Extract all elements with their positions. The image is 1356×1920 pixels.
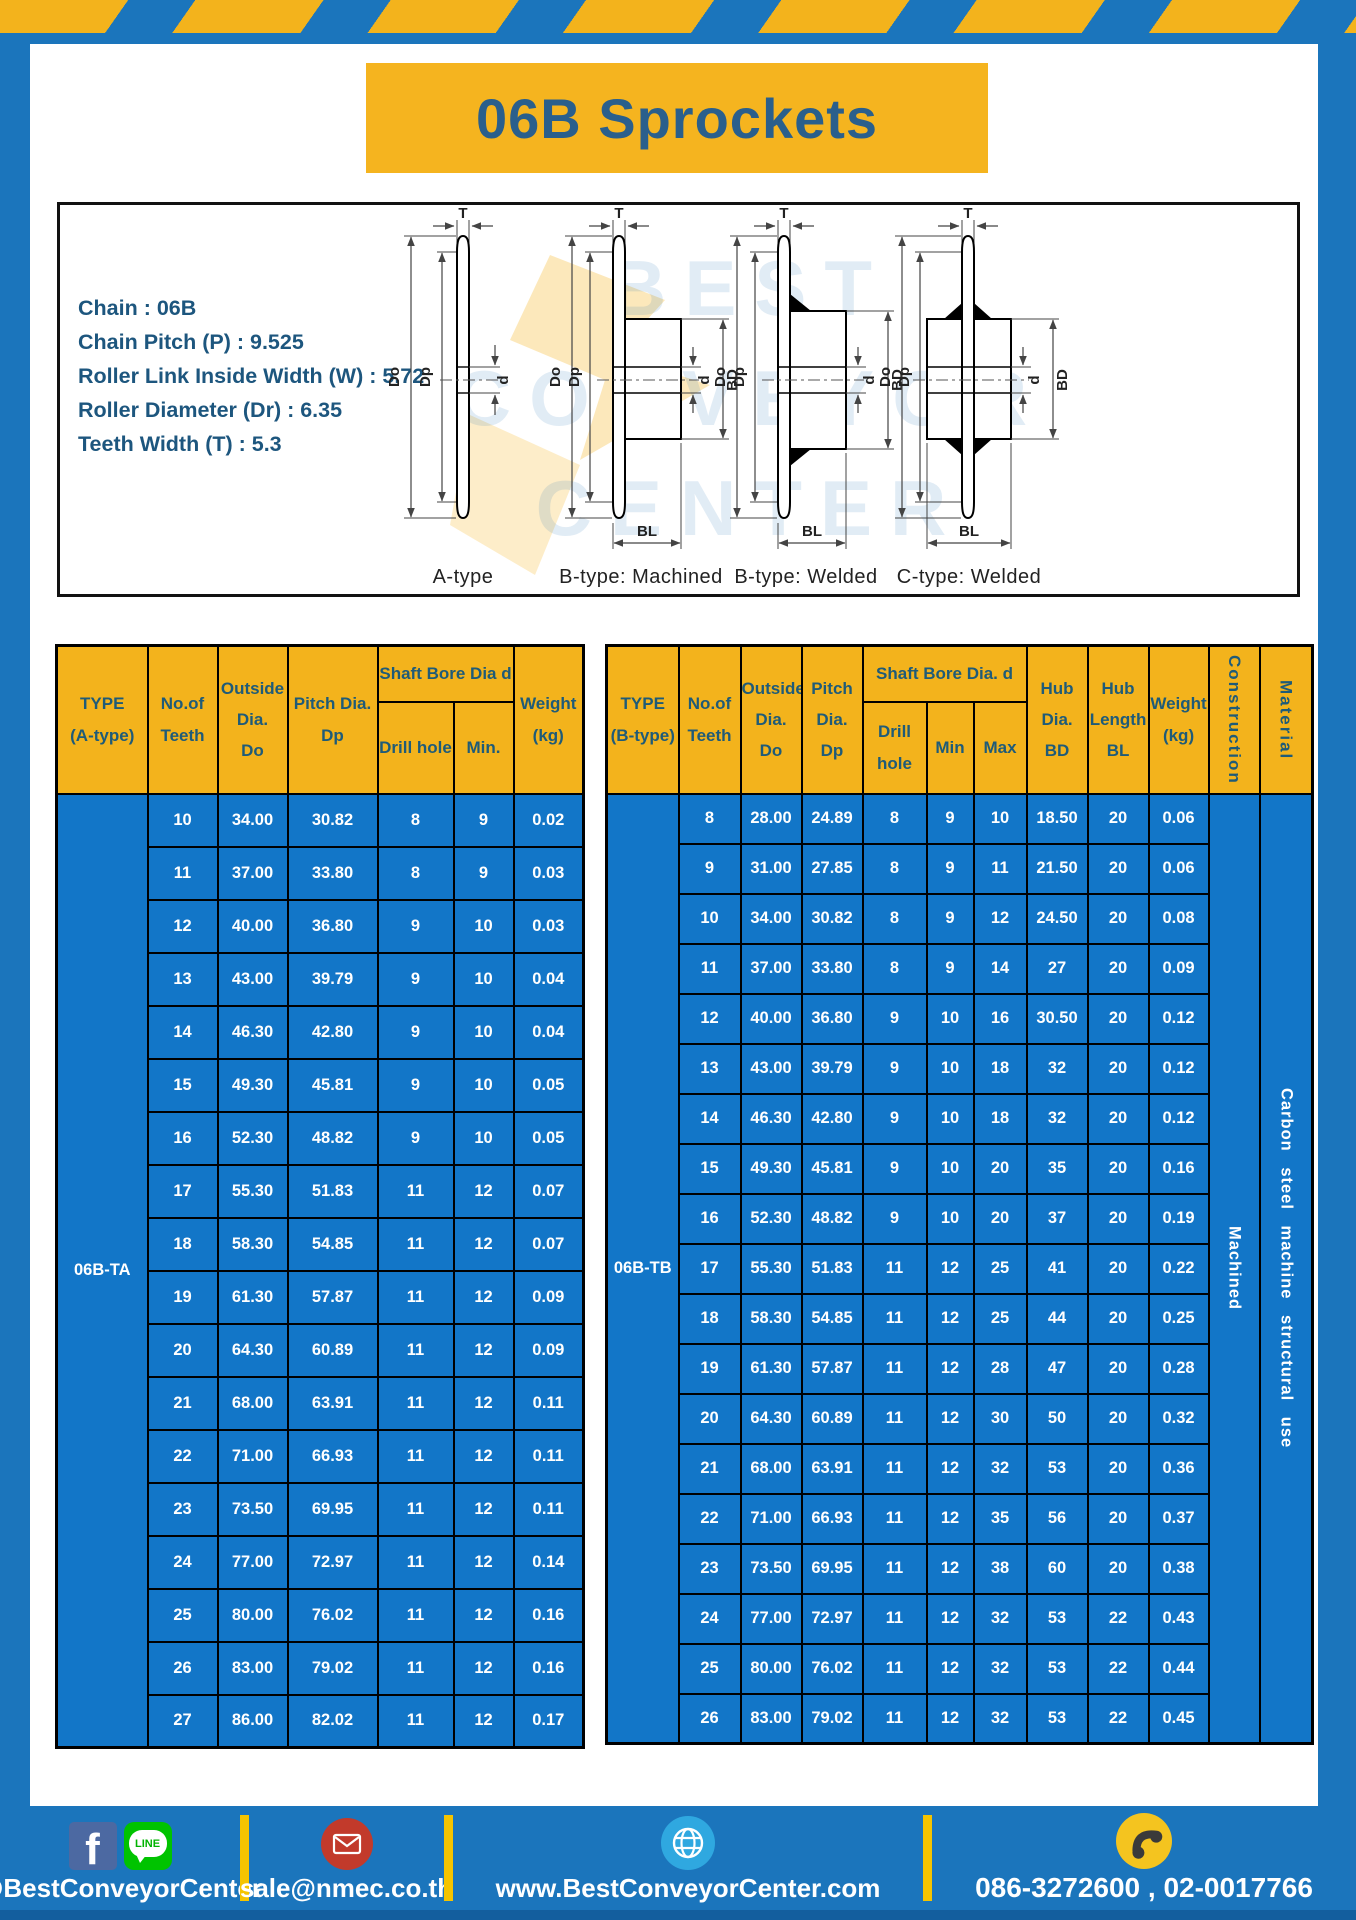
table-cell: 57.87 <box>288 1271 378 1324</box>
table-cell: 12 <box>927 1294 974 1344</box>
table-cell: 72.97 <box>288 1536 378 1589</box>
social-icons: f LINE <box>69 1822 172 1870</box>
table-cell: 73.50 <box>741 1544 802 1594</box>
facebook-letter: f <box>85 1830 100 1870</box>
table-cell: 0.19 <box>1149 1194 1209 1244</box>
col-header-shaft-bore-group: Shaft Bore Dia. d <box>863 646 1027 702</box>
table-cell: 14 <box>148 1006 218 1059</box>
table-cell: 26 <box>148 1642 218 1695</box>
table-cell: 13 <box>679 1044 741 1094</box>
table-cell: 12 <box>679 994 741 1044</box>
table-cell: 21 <box>148 1377 218 1430</box>
table-cell: 80.00 <box>218 1589 288 1642</box>
table-cell: 22 <box>679 1494 741 1544</box>
svg-text:BL: BL <box>802 523 822 540</box>
phone-text: 086-3272600 , 02-0017766 <box>975 1872 1313 1904</box>
table-cell: 0.38 <box>1149 1544 1209 1594</box>
table-row: 1240.0036.809101630.50200.12 <box>607 994 1313 1044</box>
table-cell: 68.00 <box>741 1444 802 1494</box>
table-type-label: 06B-TA <box>57 794 148 1748</box>
table-cell: 9 <box>863 1144 927 1194</box>
table-cell: 35 <box>1027 1144 1088 1194</box>
table-cell: 11 <box>378 1271 454 1324</box>
table-cell: 77.00 <box>218 1536 288 1589</box>
table-cell: 18 <box>974 1044 1027 1094</box>
table-cell: 12 <box>454 1377 514 1430</box>
mail-icon <box>321 1818 373 1870</box>
svg-text:Do: Do <box>877 367 894 387</box>
table-cell: 53 <box>1027 1444 1088 1494</box>
table-row: 2683.0079.0211123253220.45 <box>607 1694 1313 1744</box>
col-header-drill-hole: Drill hole <box>863 702 927 794</box>
table-cell: 69.95 <box>288 1483 378 1536</box>
table-cell: 53 <box>1027 1594 1088 1644</box>
table-cell: 16 <box>974 994 1027 1044</box>
table-cell: 11 <box>148 847 218 900</box>
table-cell: 32 <box>1027 1094 1088 1144</box>
table-cell: 38 <box>974 1544 1027 1594</box>
table-cell: 0.11 <box>514 1377 584 1430</box>
construction-value: Machined <box>1209 794 1260 1744</box>
table-cell: 26 <box>679 1694 741 1744</box>
table-cell: 0.02 <box>514 794 584 847</box>
table-row: 1343.0039.799101832200.12 <box>607 1044 1313 1094</box>
table-row: 1549.3045.819102035200.16 <box>607 1144 1313 1194</box>
table-cell: 57.87 <box>802 1344 863 1394</box>
table-cell: 10 <box>927 1194 974 1244</box>
table-cell: 20 <box>1088 1294 1149 1344</box>
table-cell: 43.00 <box>741 1044 802 1094</box>
table-cell: 9 <box>378 900 454 953</box>
table-cell: 20 <box>1088 1194 1149 1244</box>
table-a-type: TYPE (A-type) No.of Teeth Outside Dia. D… <box>55 644 585 1749</box>
table-cell: 42.80 <box>802 1094 863 1144</box>
table-cell: 40.00 <box>218 900 288 953</box>
table-cell: 51.83 <box>802 1244 863 1294</box>
table-cell: 10 <box>454 953 514 1006</box>
table-cell: 18.50 <box>1027 794 1088 844</box>
col-header-min: Min. <box>454 702 514 794</box>
table-cell: 46.30 <box>218 1006 288 1059</box>
table-cell: 54.85 <box>288 1218 378 1271</box>
table-cell: 12 <box>927 1344 974 1394</box>
table-row: 1034.0030.82891224.50200.08 <box>607 894 1313 944</box>
table-cell: 12 <box>927 1544 974 1594</box>
table-cell: 37.00 <box>741 944 802 994</box>
line-icon: LINE <box>124 1822 172 1870</box>
table-cell: 11 <box>863 1594 927 1644</box>
table-cell: 79.02 <box>288 1642 378 1695</box>
table-cell: 12 <box>148 900 218 953</box>
table-cell: 0.11 <box>514 1430 584 1483</box>
footer-website-section: www.BestConveyorCenter.com <box>453 1806 923 1910</box>
table-cell: 71.00 <box>741 1494 802 1544</box>
table-cell: 10 <box>927 1144 974 1194</box>
table-cell: 9 <box>378 1059 454 1112</box>
svg-text:T: T <box>963 207 972 222</box>
table-cell: 22 <box>1088 1694 1149 1744</box>
table-cell: 11 <box>863 1344 927 1394</box>
table-cell: 19 <box>679 1344 741 1394</box>
table-cell: 9 <box>927 794 974 844</box>
table-cell: 12 <box>927 1244 974 1294</box>
table-cell: 20 <box>1088 1344 1149 1394</box>
table-cell: 11 <box>378 1589 454 1642</box>
table-cell: 19 <box>148 1271 218 1324</box>
table-cell: 12 <box>454 1165 514 1218</box>
table-cell: 20 <box>1088 1144 1149 1194</box>
table-row: 1652.3048.829102037200.19 <box>607 1194 1313 1244</box>
table-cell: 10 <box>927 1094 974 1144</box>
footer-divider <box>444 1815 453 1901</box>
table-cell: 0.04 <box>514 1006 584 1059</box>
table-cell: 12 <box>454 1324 514 1377</box>
table-cell: 47 <box>1027 1344 1088 1394</box>
table-cell: 0.12 <box>1149 1094 1209 1144</box>
footer-social-section: f LINE @BestConveyorCenter <box>0 1806 240 1910</box>
table-cell: 0.14 <box>514 1536 584 1589</box>
table-cell: 9 <box>378 953 454 1006</box>
table-cell: 9 <box>863 1094 927 1144</box>
table-cell: 12 <box>927 1694 974 1744</box>
table-cell: 77.00 <box>741 1594 802 1644</box>
table-b-type: TYPE (B-type) No.of Teeth Outside Dia. D… <box>605 644 1314 1745</box>
phone-icon <box>1116 1813 1172 1869</box>
table-cell: 14 <box>679 1094 741 1144</box>
table-cell: 58.30 <box>741 1294 802 1344</box>
col-header-min: Min <box>927 702 974 794</box>
table-cell: 30.82 <box>288 794 378 847</box>
col-header-drill-hole: Drill hole <box>378 702 454 794</box>
table-row: 2064.3060.8911123050200.32 <box>607 1394 1313 1444</box>
dim-label-do: Do <box>386 367 403 387</box>
table-cell: 12 <box>454 1642 514 1695</box>
table-cell: 11 <box>679 944 741 994</box>
table-cell: 32 <box>974 1594 1027 1644</box>
table-cell: 46.30 <box>741 1094 802 1144</box>
footer-email-section: sale@nmec.co.th <box>249 1806 444 1910</box>
table-cell: 20 <box>1088 1444 1149 1494</box>
table-cell: 39.79 <box>802 1044 863 1094</box>
col-header-shaft-bore-group: Shaft Bore Dia d <box>378 646 514 702</box>
col-header-outside-dia: Outside Dia. Do <box>741 646 802 794</box>
table-cell: 18 <box>148 1218 218 1271</box>
table-cell: 11 <box>378 1165 454 1218</box>
table-cell: 80.00 <box>741 1644 802 1694</box>
table-cell: 8 <box>863 844 927 894</box>
table-row: 1137.0033.80891427200.09 <box>607 944 1313 994</box>
table-cell: 20 <box>1088 894 1149 944</box>
table-cell: 36.80 <box>802 994 863 1044</box>
table-cell: 20 <box>1088 1494 1149 1544</box>
table-cell: 76.02 <box>288 1589 378 1642</box>
table-cell: 8 <box>679 794 741 844</box>
table-cell: 69.95 <box>802 1544 863 1594</box>
table-cell: 0.03 <box>514 900 584 953</box>
table-cell: 10 <box>927 994 974 1044</box>
col-header-construction: Construction <box>1209 646 1260 794</box>
col-header-hub-length: Hub Length BL <box>1088 646 1149 794</box>
table-cell: 12 <box>974 894 1027 944</box>
table-cell: 12 <box>927 1394 974 1444</box>
table-row: 1446.3042.809101832200.12 <box>607 1094 1313 1144</box>
table-cell: 15 <box>679 1144 741 1194</box>
table-cell: 8 <box>378 847 454 900</box>
table-cell: 11 <box>378 1377 454 1430</box>
table-cell: 60 <box>1027 1544 1088 1594</box>
table-cell: 0.05 <box>514 1059 584 1112</box>
table-cell: 9 <box>378 1112 454 1165</box>
table-cell: 83.00 <box>218 1642 288 1695</box>
table-cell: 0.43 <box>1149 1594 1209 1644</box>
table-cell: 71.00 <box>218 1430 288 1483</box>
table-cell: 12 <box>454 1430 514 1483</box>
line-label: LINE <box>129 1830 167 1857</box>
table-row: 06B-TB828.0024.89891018.50200.06Machined… <box>607 794 1313 844</box>
table-cell: 41 <box>1027 1244 1088 1294</box>
table-type-label: 06B-TB <box>607 794 679 1744</box>
table-cell: 9 <box>927 944 974 994</box>
table-cell: 37 <box>1027 1194 1088 1244</box>
table-cell: 0.32 <box>1149 1394 1209 1444</box>
table-cell: 10 <box>454 900 514 953</box>
table-row: 06B-TA1034.0030.82890.02 <box>57 794 584 847</box>
table-cell: 9 <box>378 1006 454 1059</box>
table-cell: 45.81 <box>802 1144 863 1194</box>
table-cell: 23 <box>679 1544 741 1594</box>
col-header-teeth: No.of Teeth <box>148 646 218 794</box>
col-header-weight: Weight (kg) <box>1149 646 1209 794</box>
table-cell: 17 <box>679 1244 741 1294</box>
table-cell: 10 <box>974 794 1027 844</box>
line-bubble-tail <box>136 1854 147 1863</box>
table-cell: 24 <box>679 1594 741 1644</box>
svg-text:BL: BL <box>959 523 979 540</box>
table-row: 2373.5069.9511123860200.38 <box>607 1544 1313 1594</box>
footer-phone-section: 086-3272600 , 02-0017766 <box>932 1806 1356 1910</box>
table-cell: 0.07 <box>514 1165 584 1218</box>
table-cell: 24 <box>148 1536 218 1589</box>
table-cell: 16 <box>679 1194 741 1244</box>
table-cell: 11 <box>863 1694 927 1744</box>
table-cell: 53 <box>1027 1644 1088 1694</box>
svg-text:BL: BL <box>637 523 657 540</box>
table-cell: 11 <box>378 1642 454 1695</box>
table-cell: 0.36 <box>1149 1444 1209 1494</box>
table-cell: 0.09 <box>1149 944 1209 994</box>
table-cell: 0.05 <box>514 1112 584 1165</box>
col-header-outside-dia: Outside Dia. Do <box>218 646 288 794</box>
table-row: 2477.0072.9711123253220.43 <box>607 1594 1313 1644</box>
table-cell: 39.79 <box>288 953 378 1006</box>
table-cell: 44 <box>1027 1294 1088 1344</box>
table-cell: 20 <box>148 1324 218 1377</box>
table-cell: 11 <box>378 1430 454 1483</box>
table-cell: 12 <box>454 1589 514 1642</box>
table-cell: 0.07 <box>514 1218 584 1271</box>
table-cell: 11 <box>378 1695 454 1748</box>
table-row: 2168.0063.9111123253200.36 <box>607 1444 1313 1494</box>
table-cell: 0.12 <box>1149 1044 1209 1094</box>
col-header-pitch-dia: Pitch Dia. Dp <box>802 646 863 794</box>
table-cell: 20 <box>974 1194 1027 1244</box>
table-cell: 11 <box>863 1444 927 1494</box>
table-cell: 16 <box>148 1112 218 1165</box>
table-row: 931.0027.85891121.50200.06 <box>607 844 1313 894</box>
dim-label-dp: Dp <box>417 367 434 387</box>
table-row: 2271.0066.9311123556200.37 <box>607 1494 1313 1544</box>
table-cell: 0.03 <box>514 847 584 900</box>
table-cell: 12 <box>454 1271 514 1324</box>
table-row: 1961.3057.8711122847200.28 <box>607 1344 1313 1394</box>
table-cell: 0.45 <box>1149 1694 1209 1744</box>
diagram-caption: A-type <box>433 566 494 588</box>
table-cell: 13 <box>148 953 218 1006</box>
table-cell: 83.00 <box>741 1694 802 1744</box>
svg-text:T: T <box>779 207 788 222</box>
table-cell: 79.02 <box>802 1694 863 1744</box>
hazard-stripe-band <box>0 0 1356 33</box>
material-value: Carbon steel machine structural use <box>1260 794 1313 1744</box>
table-cell: 11 <box>863 1494 927 1544</box>
table-cell: 11 <box>863 1544 927 1594</box>
table-cell: 49.30 <box>218 1059 288 1112</box>
table-cell: 12 <box>454 1483 514 1536</box>
dim-label-d: d <box>495 375 512 384</box>
table-cell: 18 <box>679 1294 741 1344</box>
table-cell: 14 <box>974 944 1027 994</box>
content-area: 06B Sprockets BEST CONVEYOR CENTER Chain… <box>30 44 1318 1806</box>
table-cell: 37.00 <box>218 847 288 900</box>
diagram-panel: BEST CONVEYOR CENTER Chain : 06B Chain P… <box>57 202 1300 597</box>
table-cell: 9 <box>863 1194 927 1244</box>
table-cell: 58.30 <box>218 1218 288 1271</box>
flyer-page: 06B Sprockets BEST CONVEYOR CENTER Chain… <box>0 0 1356 1920</box>
table-cell: 11 <box>378 1218 454 1271</box>
table-cell: 9 <box>863 994 927 1044</box>
table-cell: 24.50 <box>1027 894 1088 944</box>
table-cell: 20 <box>1088 1544 1149 1594</box>
table-cell: 30 <box>974 1394 1027 1444</box>
email-text: sale@nmec.co.th <box>240 1873 453 1904</box>
table-cell: 31.00 <box>741 844 802 894</box>
table-cell: 18 <box>974 1094 1027 1144</box>
table-cell: 0.06 <box>1149 794 1209 844</box>
svg-text:Dp: Dp <box>731 367 748 387</box>
table-cell: 11 <box>974 844 1027 894</box>
table-cell: 0.12 <box>1149 994 1209 1044</box>
table-cell: 34.00 <box>741 894 802 944</box>
col-header-pitch-dia: Pitch Dia. Dp <box>288 646 378 794</box>
table-cell: 11 <box>863 1644 927 1694</box>
table-cell: 9 <box>927 894 974 944</box>
table-cell: 11 <box>378 1536 454 1589</box>
table-cell: 8 <box>863 794 927 844</box>
table-cell: 15 <box>148 1059 218 1112</box>
table-cell: 0.16 <box>514 1642 584 1695</box>
table-cell: 52.30 <box>741 1194 802 1244</box>
table-cell: 30.82 <box>802 894 863 944</box>
diagram-c-type-welded: T Do Dp d BD <box>853 207 1083 597</box>
table-cell: 9 <box>454 847 514 900</box>
table-cell: 20 <box>1088 1094 1149 1144</box>
table-cell: 32 <box>1027 1044 1088 1094</box>
col-header-type: TYPE (A-type) <box>57 646 148 794</box>
table-cell: 12 <box>927 1444 974 1494</box>
table-cell: 54.85 <box>802 1294 863 1344</box>
table-cell: 64.30 <box>741 1394 802 1444</box>
table-cell: 10 <box>927 1044 974 1094</box>
table-cell: 63.91 <box>802 1444 863 1494</box>
table-cell: 60.89 <box>802 1394 863 1444</box>
table-cell: 10 <box>454 1059 514 1112</box>
table-cell: 25 <box>679 1644 741 1694</box>
table-cell: 0.28 <box>1149 1344 1209 1394</box>
col-header-weight: Weight (kg) <box>514 646 584 794</box>
title-banner: 06B Sprockets <box>366 63 988 173</box>
table-cell: 60.89 <box>288 1324 378 1377</box>
table-cell: 12 <box>927 1644 974 1694</box>
table-cell: 24.89 <box>802 794 863 844</box>
table-cell: 8 <box>863 944 927 994</box>
table-cell: 0.11 <box>514 1483 584 1536</box>
table-cell: 0.37 <box>1149 1494 1209 1544</box>
table-cell: 8 <box>378 794 454 847</box>
facebook-icon: f <box>69 1822 117 1870</box>
table-cell: 9 <box>863 1044 927 1094</box>
table-cell: 28.00 <box>741 794 802 844</box>
col-header-teeth: No.of Teeth <box>679 646 741 794</box>
table-cell: 53 <box>1027 1694 1088 1744</box>
table-cell: 0.04 <box>514 953 584 1006</box>
table-cell: 12 <box>454 1218 514 1271</box>
table-cell: 11 <box>863 1244 927 1294</box>
table-cell: 20 <box>1088 844 1149 894</box>
table-cell: 27 <box>148 1695 218 1748</box>
table-cell: 21.50 <box>1027 844 1088 894</box>
table-cell: 12 <box>927 1594 974 1644</box>
table-cell: 64.30 <box>218 1324 288 1377</box>
table-cell: 9 <box>679 844 741 894</box>
table-cell: 22 <box>1088 1644 1149 1694</box>
table-row: 1755.3051.8311122541200.22 <box>607 1244 1313 1294</box>
table-cell: 40.00 <box>741 994 802 1044</box>
table-cell: 0.06 <box>1149 844 1209 894</box>
table-cell: 82.02 <box>288 1695 378 1748</box>
table-cell: 17 <box>148 1165 218 1218</box>
table-cell: 61.30 <box>218 1271 288 1324</box>
table-cell: 48.82 <box>288 1112 378 1165</box>
table-cell: 43.00 <box>218 953 288 1006</box>
table-cell: 20 <box>1088 1044 1149 1094</box>
footer-contact-bar: f LINE @BestConveyorCenter sale@nmec.co.… <box>0 1806 1356 1920</box>
globe-icon <box>661 1816 715 1870</box>
table-cell: 51.83 <box>288 1165 378 1218</box>
table-cell: 32 <box>974 1694 1027 1744</box>
table-cell: 8 <box>863 894 927 944</box>
table-cell: 0.22 <box>1149 1244 1209 1294</box>
table-cell: 0.44 <box>1149 1644 1209 1694</box>
table-cell: 42.80 <box>288 1006 378 1059</box>
table-row: 2580.0076.0211123253220.44 <box>607 1644 1313 1694</box>
table-cell: 0.16 <box>1149 1144 1209 1194</box>
table-cell: 30.50 <box>1027 994 1088 1044</box>
table-cell: 11 <box>378 1324 454 1377</box>
table-cell: 23 <box>148 1483 218 1536</box>
dim-label-t: T <box>458 207 467 222</box>
table-cell: 66.93 <box>288 1430 378 1483</box>
svg-text:d: d <box>1026 375 1043 384</box>
